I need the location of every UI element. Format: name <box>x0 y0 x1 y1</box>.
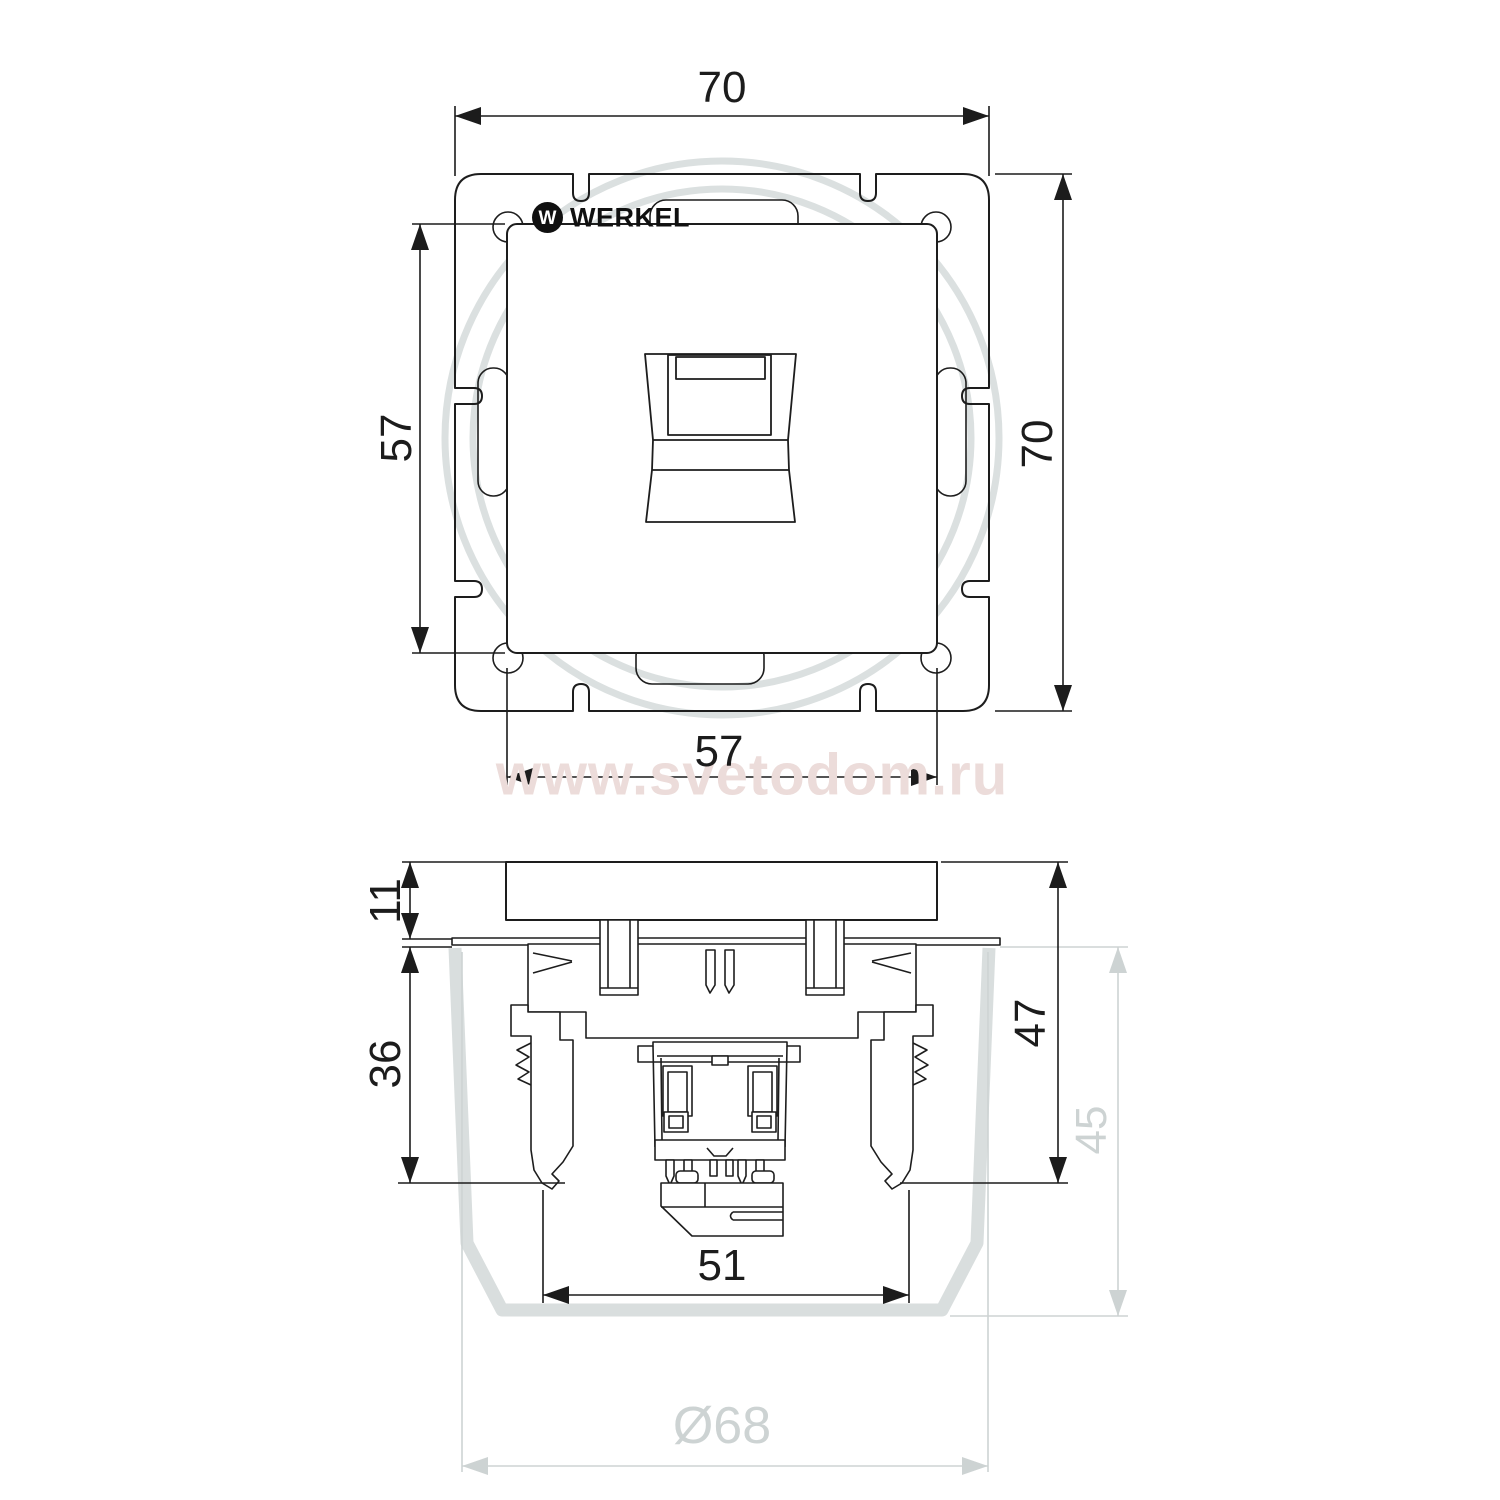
dim-mechanism-width: 51 <box>698 1244 747 1288</box>
dim-frame-width-top: 70 <box>698 66 747 110</box>
dim-overall-depth: 47 <box>1009 999 1053 1048</box>
dim-frame-height-right: 70 <box>1016 420 1060 469</box>
brand-name: WERKEL <box>570 203 690 234</box>
dim-box-depth: 45 <box>1070 1106 1114 1155</box>
keystone-module <box>638 1042 800 1236</box>
brand-logo: W WERKEL <box>532 202 682 234</box>
dim-plate-height-left: 57 <box>375 414 419 463</box>
technical-drawing-page: W WERKEL www.svetodom.ru 70 70 57 57 11 … <box>0 0 1500 1500</box>
side-face-plate <box>506 862 937 920</box>
watermark: www.svetodom.ru <box>496 742 1008 809</box>
side-dimension-lines <box>398 862 1068 1303</box>
side-dimension-arrows <box>401 862 1067 1304</box>
front-view <box>411 106 1072 786</box>
side-view <box>398 862 1128 1475</box>
dim-plate-width-bottom: 57 <box>695 730 744 774</box>
dim-box-diameter: Ø68 <box>673 1400 771 1452</box>
brand-logo-letter: W <box>539 208 557 230</box>
dim-claw-depth: 36 <box>364 1040 408 1089</box>
face-plate <box>507 224 937 653</box>
dim-plate-thickness: 11 <box>364 878 408 924</box>
